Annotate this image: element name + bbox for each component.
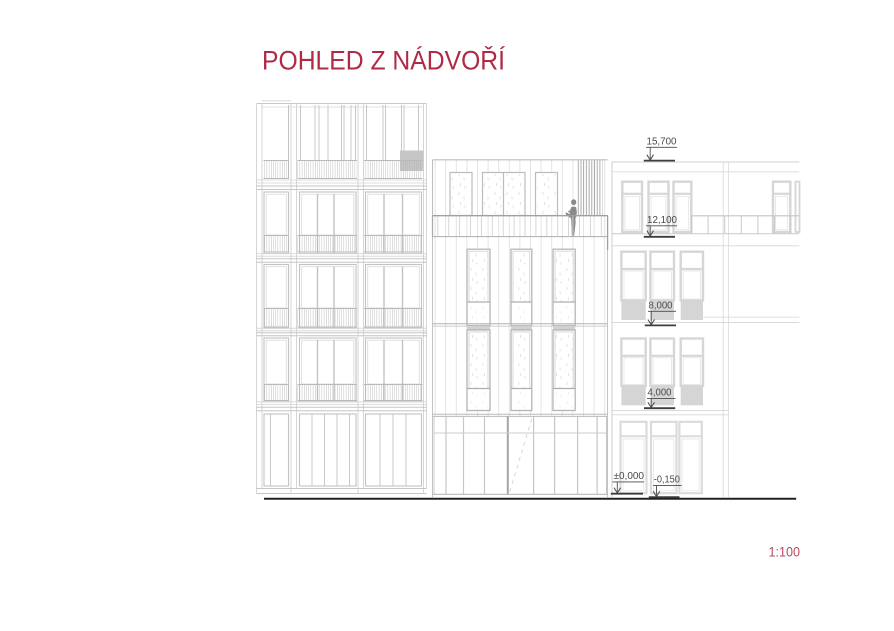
svg-text:POHLED Z NÁDVOŘÍ: POHLED Z NÁDVOŘÍ [262, 45, 506, 75]
svg-text:±0,000: ±0,000 [614, 471, 645, 482]
svg-text:12,100: 12,100 [647, 215, 678, 226]
svg-text:-0,150: -0,150 [654, 474, 681, 485]
svg-text:15,700: 15,700 [647, 136, 678, 147]
svg-text:4,000: 4,000 [648, 387, 673, 398]
svg-text:8,000: 8,000 [649, 300, 674, 311]
svg-text:1:100: 1:100 [769, 544, 801, 560]
